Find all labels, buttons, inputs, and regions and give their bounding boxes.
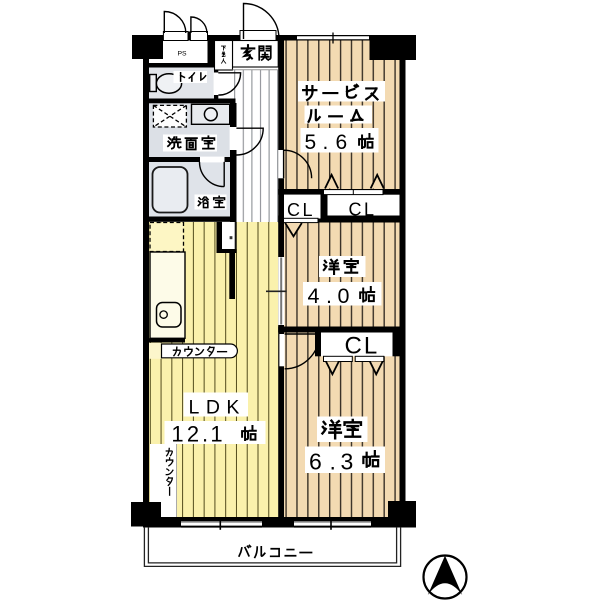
svg-text:.: . bbox=[202, 422, 208, 447]
svg-text:.: . bbox=[326, 284, 332, 308]
svg-text:2: 2 bbox=[187, 422, 199, 447]
svg-text:6: 6 bbox=[336, 131, 348, 154]
svg-text:0: 0 bbox=[338, 284, 350, 308]
svg-text:.: . bbox=[323, 131, 329, 154]
svg-text:3: 3 bbox=[341, 449, 354, 475]
svg-text:PS: PS bbox=[177, 51, 187, 58]
svg-text:.: . bbox=[330, 449, 336, 475]
svg-text:CL: CL bbox=[349, 200, 377, 220]
svg-text:1: 1 bbox=[171, 422, 183, 447]
svg-text:1: 1 bbox=[210, 422, 222, 447]
svg-text:CL: CL bbox=[287, 200, 315, 220]
svg-text:5: 5 bbox=[305, 131, 317, 154]
svg-text:LDK: LDK bbox=[189, 397, 246, 419]
svg-text:CL: CL bbox=[345, 333, 380, 360]
svg-text:6: 6 bbox=[309, 449, 322, 475]
svg-text:4: 4 bbox=[308, 284, 320, 308]
